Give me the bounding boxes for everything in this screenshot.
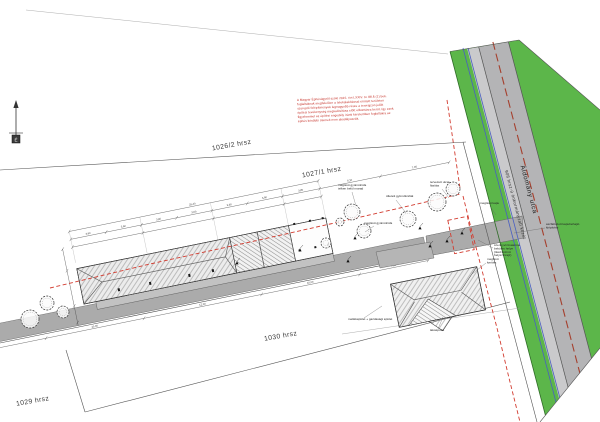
tree bbox=[57, 306, 69, 318]
tree bbox=[336, 218, 344, 226]
annotation-label: ültetett gyümölcsfák bbox=[386, 194, 414, 198]
legal-note-text: A Magyar Építésügyről szóló 2016. évi LX… bbox=[297, 93, 395, 123]
dimension-label: 3,60 bbox=[85, 231, 91, 236]
boundary-top bbox=[26, 10, 448, 54]
survey-marker-flag bbox=[355, 233, 358, 236]
dimension-label: 6,10 bbox=[347, 178, 353, 183]
tree bbox=[321, 238, 331, 248]
tree bbox=[21, 310, 39, 328]
survey-marker bbox=[353, 236, 356, 239]
north-arrow: É bbox=[9, 100, 23, 143]
survey-marker-flag bbox=[420, 223, 423, 226]
dimension-label: 3,60 bbox=[191, 209, 197, 214]
parcel-label-1027-1: 1027/1 hrsz bbox=[301, 166, 342, 180]
street-corridor bbox=[426, 40, 600, 422]
annotation-label: lakóépület bbox=[430, 328, 444, 332]
legal-note-block: A Magyar Építésügyről szóló 2016. évi LX… bbox=[297, 93, 395, 123]
tree bbox=[428, 193, 446, 211]
annotation-label: melléképület + gazdasági épület bbox=[348, 317, 392, 321]
annotation-label: meglévőkerítés bbox=[487, 257, 499, 264]
annotation-label: meglévő gyümölcsfa bbox=[364, 221, 392, 225]
parcel-label-1030: 1030 hrsz bbox=[264, 330, 298, 343]
north-label: É bbox=[14, 136, 17, 142]
annotation-label: meglévő gyümölcsfatelken belül marad bbox=[338, 183, 366, 190]
annotation-label: meglévő kapu bbox=[480, 201, 500, 205]
site-plan-drawing: 3,603,603,603,603,603,603,8025,406,107,0… bbox=[0, 0, 600, 422]
annotation-leader bbox=[396, 200, 406, 213]
site-plan-canvas: 3,603,603,603,603,603,603,8025,406,107,0… bbox=[0, 0, 600, 422]
parcel-label-1029: 1029 hrsz bbox=[16, 395, 50, 408]
dimension-label: 7,05 bbox=[411, 164, 417, 169]
parcel-label-1026-2: 1026/2 hrsz bbox=[211, 139, 252, 153]
survey-marker bbox=[418, 226, 421, 229]
boundary-1029-vertical bbox=[66, 350, 85, 412]
north-arrow-head bbox=[13, 100, 18, 108]
dimension-label: 3,60 bbox=[120, 224, 126, 229]
dimension-label: 3,60 bbox=[262, 195, 268, 200]
dimension-label: 3,80 bbox=[298, 188, 304, 193]
dimension-label: 3,60 bbox=[156, 216, 162, 221]
dimension-label: 3,60 bbox=[226, 202, 232, 207]
